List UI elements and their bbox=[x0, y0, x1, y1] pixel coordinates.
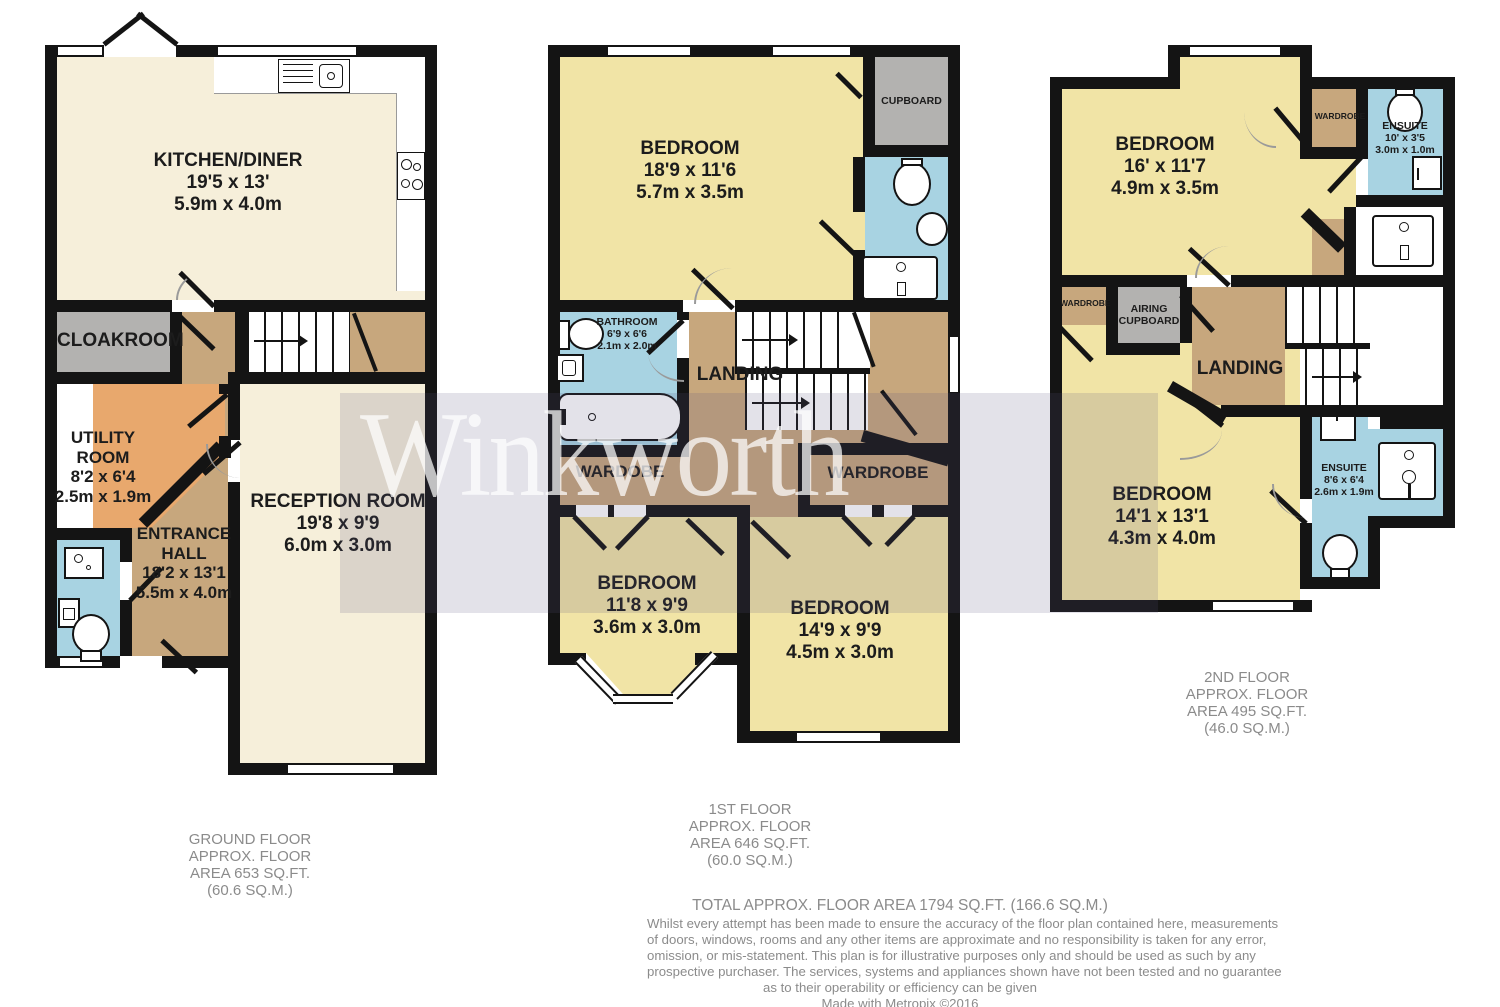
room-name: ENSUITE bbox=[1300, 462, 1388, 474]
hob-icon bbox=[397, 152, 425, 200]
bay-window bbox=[613, 694, 673, 704]
room-dims-imperial: 18'9 x 11'6 bbox=[590, 160, 790, 182]
room-dims-metric: 5.5m x 4.0m bbox=[124, 583, 244, 603]
room-name: KITCHEN/DINER bbox=[128, 150, 328, 172]
front-double-door-opening bbox=[104, 45, 176, 57]
shower-icon bbox=[1412, 156, 1442, 190]
washbasin-icon bbox=[916, 212, 948, 246]
toilet-icon bbox=[72, 614, 110, 654]
ground-floor-label: GROUND FLOOR APPROX. FLOOR AREA 653 SQ.F… bbox=[150, 831, 350, 899]
room-dims-metric: 5.7m x 3.5m bbox=[590, 182, 790, 204]
room-dims-imperial: 16' x 11'7 bbox=[1065, 156, 1265, 178]
room-name: AIRING bbox=[1113, 303, 1185, 315]
vanity-sink-icon bbox=[862, 256, 938, 300]
room-dims-imperial: 8'6 x 6'4 bbox=[1300, 474, 1388, 486]
metropix-credit: Made with Metropix ©2016 bbox=[647, 996, 1153, 1007]
kitchen-sink-icon bbox=[278, 59, 350, 93]
room-dims-metric: 2.6m x 1.9m bbox=[1300, 486, 1388, 498]
window bbox=[218, 45, 356, 57]
total-floor-area: TOTAL APPROX. FLOOR AREA 1794 SQ.FT. (16… bbox=[600, 897, 1200, 915]
room-name: WARDROBE bbox=[1312, 112, 1368, 122]
toilet-icon bbox=[893, 162, 931, 206]
window bbox=[1213, 600, 1293, 612]
room-name: HALL bbox=[124, 544, 244, 564]
front-door-opening bbox=[120, 656, 162, 668]
landing-floor bbox=[1192, 287, 1285, 405]
window bbox=[58, 45, 102, 57]
stairs-arrow bbox=[1312, 376, 1354, 378]
watermark-text: Winkworth bbox=[360, 394, 847, 516]
room-dims-metric: 3.0m x 1.0m bbox=[1364, 144, 1446, 156]
room-name: CLOAKROOM bbox=[57, 330, 170, 352]
room-name: BATHROOM bbox=[582, 316, 672, 328]
room-dims-imperial: 10' x 3'5 bbox=[1364, 132, 1446, 144]
window bbox=[948, 337, 960, 392]
room-dims-imperial: 6'9 x 6'6 bbox=[582, 328, 672, 340]
washbasin-icon bbox=[64, 547, 104, 579]
room-dims-metric: 2.1m x 2.0m bbox=[582, 340, 672, 352]
door-leaf bbox=[136, 12, 178, 47]
room-dims-imperial: 19'5 x 13' bbox=[128, 172, 328, 194]
room-dims-metric: 5.9m x 4.0m bbox=[128, 194, 328, 216]
room-name: ROOM bbox=[43, 448, 163, 468]
room-name: ENTRANCE bbox=[124, 524, 244, 544]
window bbox=[608, 45, 690, 57]
window bbox=[1190, 45, 1280, 57]
washbasin-icon bbox=[556, 354, 584, 382]
washbasin-icon bbox=[1320, 415, 1356, 441]
room-dims-imperial: 8'2 x 6'4 bbox=[43, 467, 163, 487]
toilet-icon bbox=[1322, 534, 1358, 572]
window bbox=[288, 763, 393, 775]
vanity-sink-icon bbox=[1372, 215, 1434, 267]
stairs-arrow bbox=[254, 340, 300, 342]
room-dims-metric: 4.9m x 3.5m bbox=[1065, 178, 1265, 200]
room-name: BEDROOM bbox=[590, 138, 790, 160]
room-name: ENSUITE bbox=[1364, 120, 1446, 132]
room-name: CUPBOARD bbox=[875, 95, 948, 107]
room-name: LANDING bbox=[1188, 358, 1292, 380]
room-name: BEDROOM bbox=[1065, 134, 1265, 156]
stairs-landing-strip bbox=[350, 312, 425, 372]
floorplan-canvas: KITCHEN/DINER 19'5 x 13' 5.9m x 4.0m CLO… bbox=[0, 0, 1500, 1007]
staircase bbox=[1285, 287, 1370, 343]
stairs-arrow bbox=[742, 339, 790, 341]
room-dims-metric: 3.6m x 3.0m bbox=[557, 617, 737, 639]
first-floor-label: 1ST FLOOR APPROX. FLOOR AREA 646 SQ.FT. … bbox=[650, 801, 850, 869]
disclaimer: Whilst every attempt has been made to en… bbox=[647, 916, 1153, 1007]
room-dims-metric: 2.5m x 1.9m bbox=[43, 487, 163, 507]
room-name: WARDROBE bbox=[1060, 299, 1108, 309]
room-dims-imperial: 14'9 x 9'9 bbox=[750, 620, 930, 642]
window bbox=[797, 731, 880, 743]
second-floor-label: 2ND FLOOR APPROX. FLOOR AREA 495 SQ.FT. … bbox=[1147, 669, 1347, 737]
room-name: LANDING bbox=[688, 364, 792, 386]
room-dims-metric: 4.5m x 3.0m bbox=[750, 642, 930, 664]
room-name: UTILITY bbox=[43, 428, 163, 448]
room-dims-imperial: 18'2 x 13'1 bbox=[124, 563, 244, 583]
window bbox=[773, 45, 850, 57]
room-name: CUPBOARD bbox=[1113, 315, 1185, 327]
